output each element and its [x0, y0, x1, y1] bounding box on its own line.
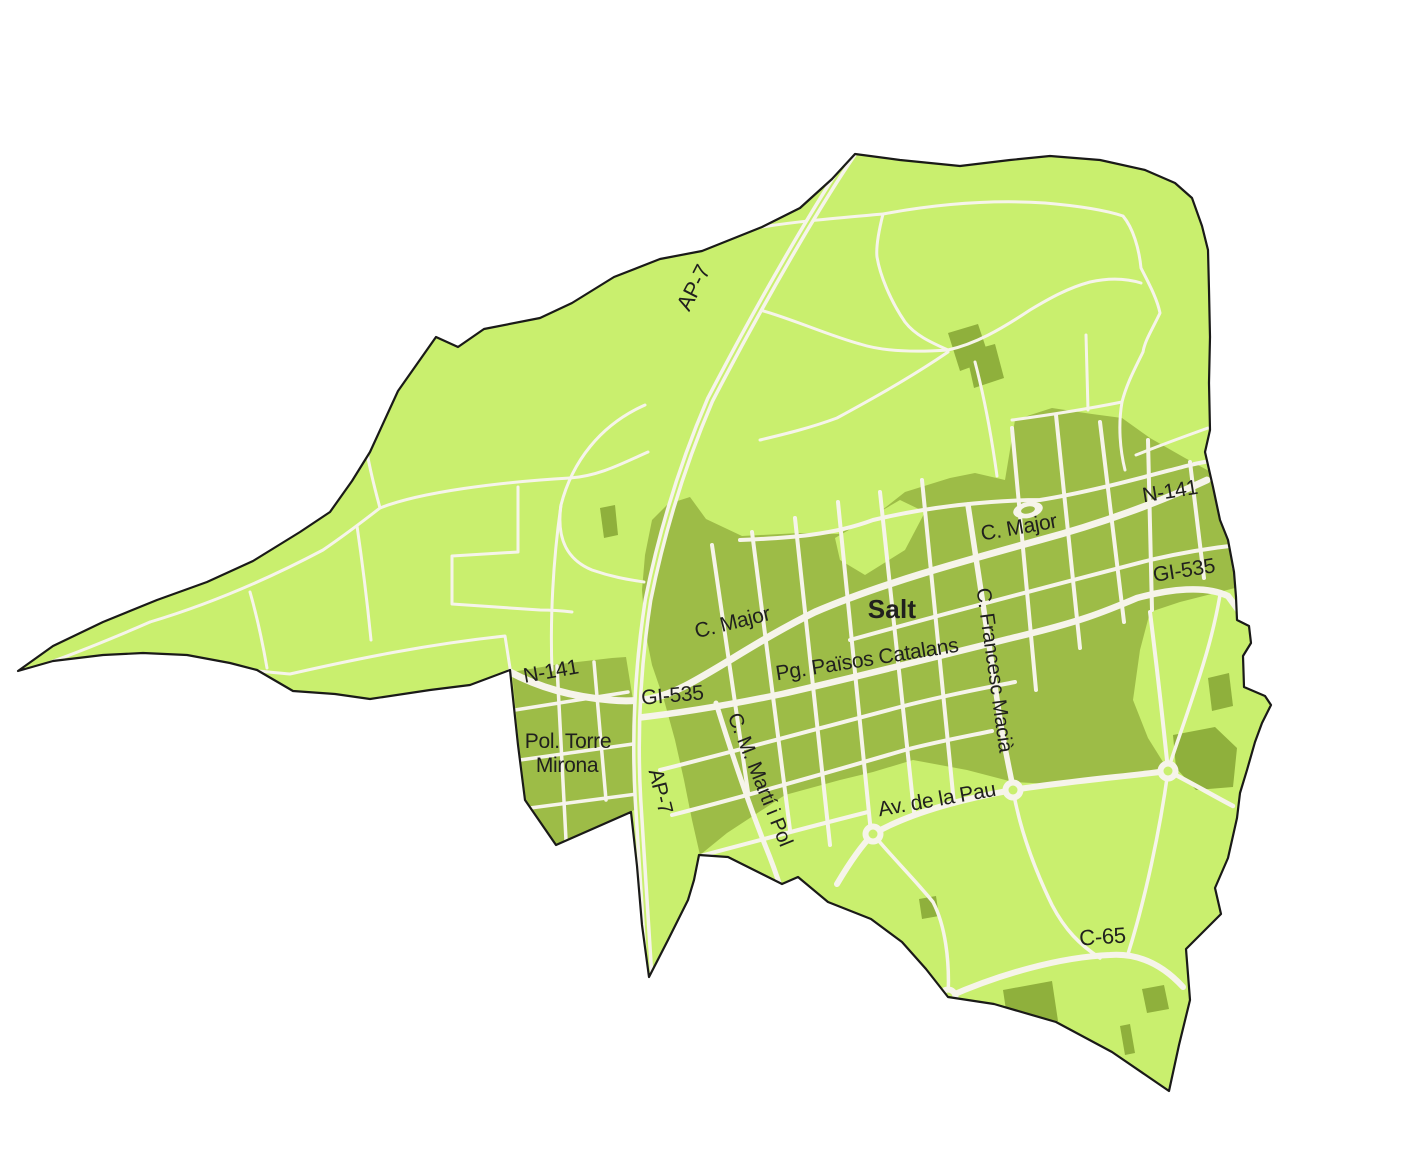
road-label-c65: C-65 — [1078, 922, 1126, 950]
district-label-pol-torre-mirona-line1: Pol. Torre — [525, 730, 612, 753]
town-label-salt: Salt — [868, 594, 917, 624]
district-label-pol-torre-mirona-line2: Mirona — [536, 754, 599, 777]
salt-municipal-map: AP-7 AP-7 N-141 N-141 GI-535 GI-535 C. M… — [0, 0, 1404, 1172]
map-page: AP-7 AP-7 N-141 N-141 GI-535 GI-535 C. M… — [0, 0, 1404, 1172]
